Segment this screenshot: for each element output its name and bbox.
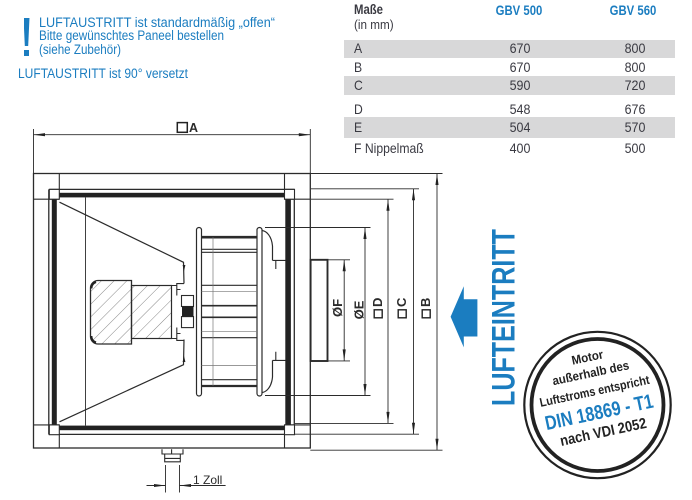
svg-text:ØF: ØF [330, 299, 345, 317]
svg-text:A: A [189, 121, 198, 135]
svg-text:D: D [370, 298, 385, 307]
svg-text:C: C [394, 297, 409, 307]
svg-text:1 Zoll: 1 Zoll [193, 473, 222, 487]
svg-text:LUFTEINTRITT: LUFTEINTRITT [486, 229, 522, 406]
svg-text:B: B [418, 298, 433, 307]
svg-text:ØE: ØE [352, 300, 367, 319]
